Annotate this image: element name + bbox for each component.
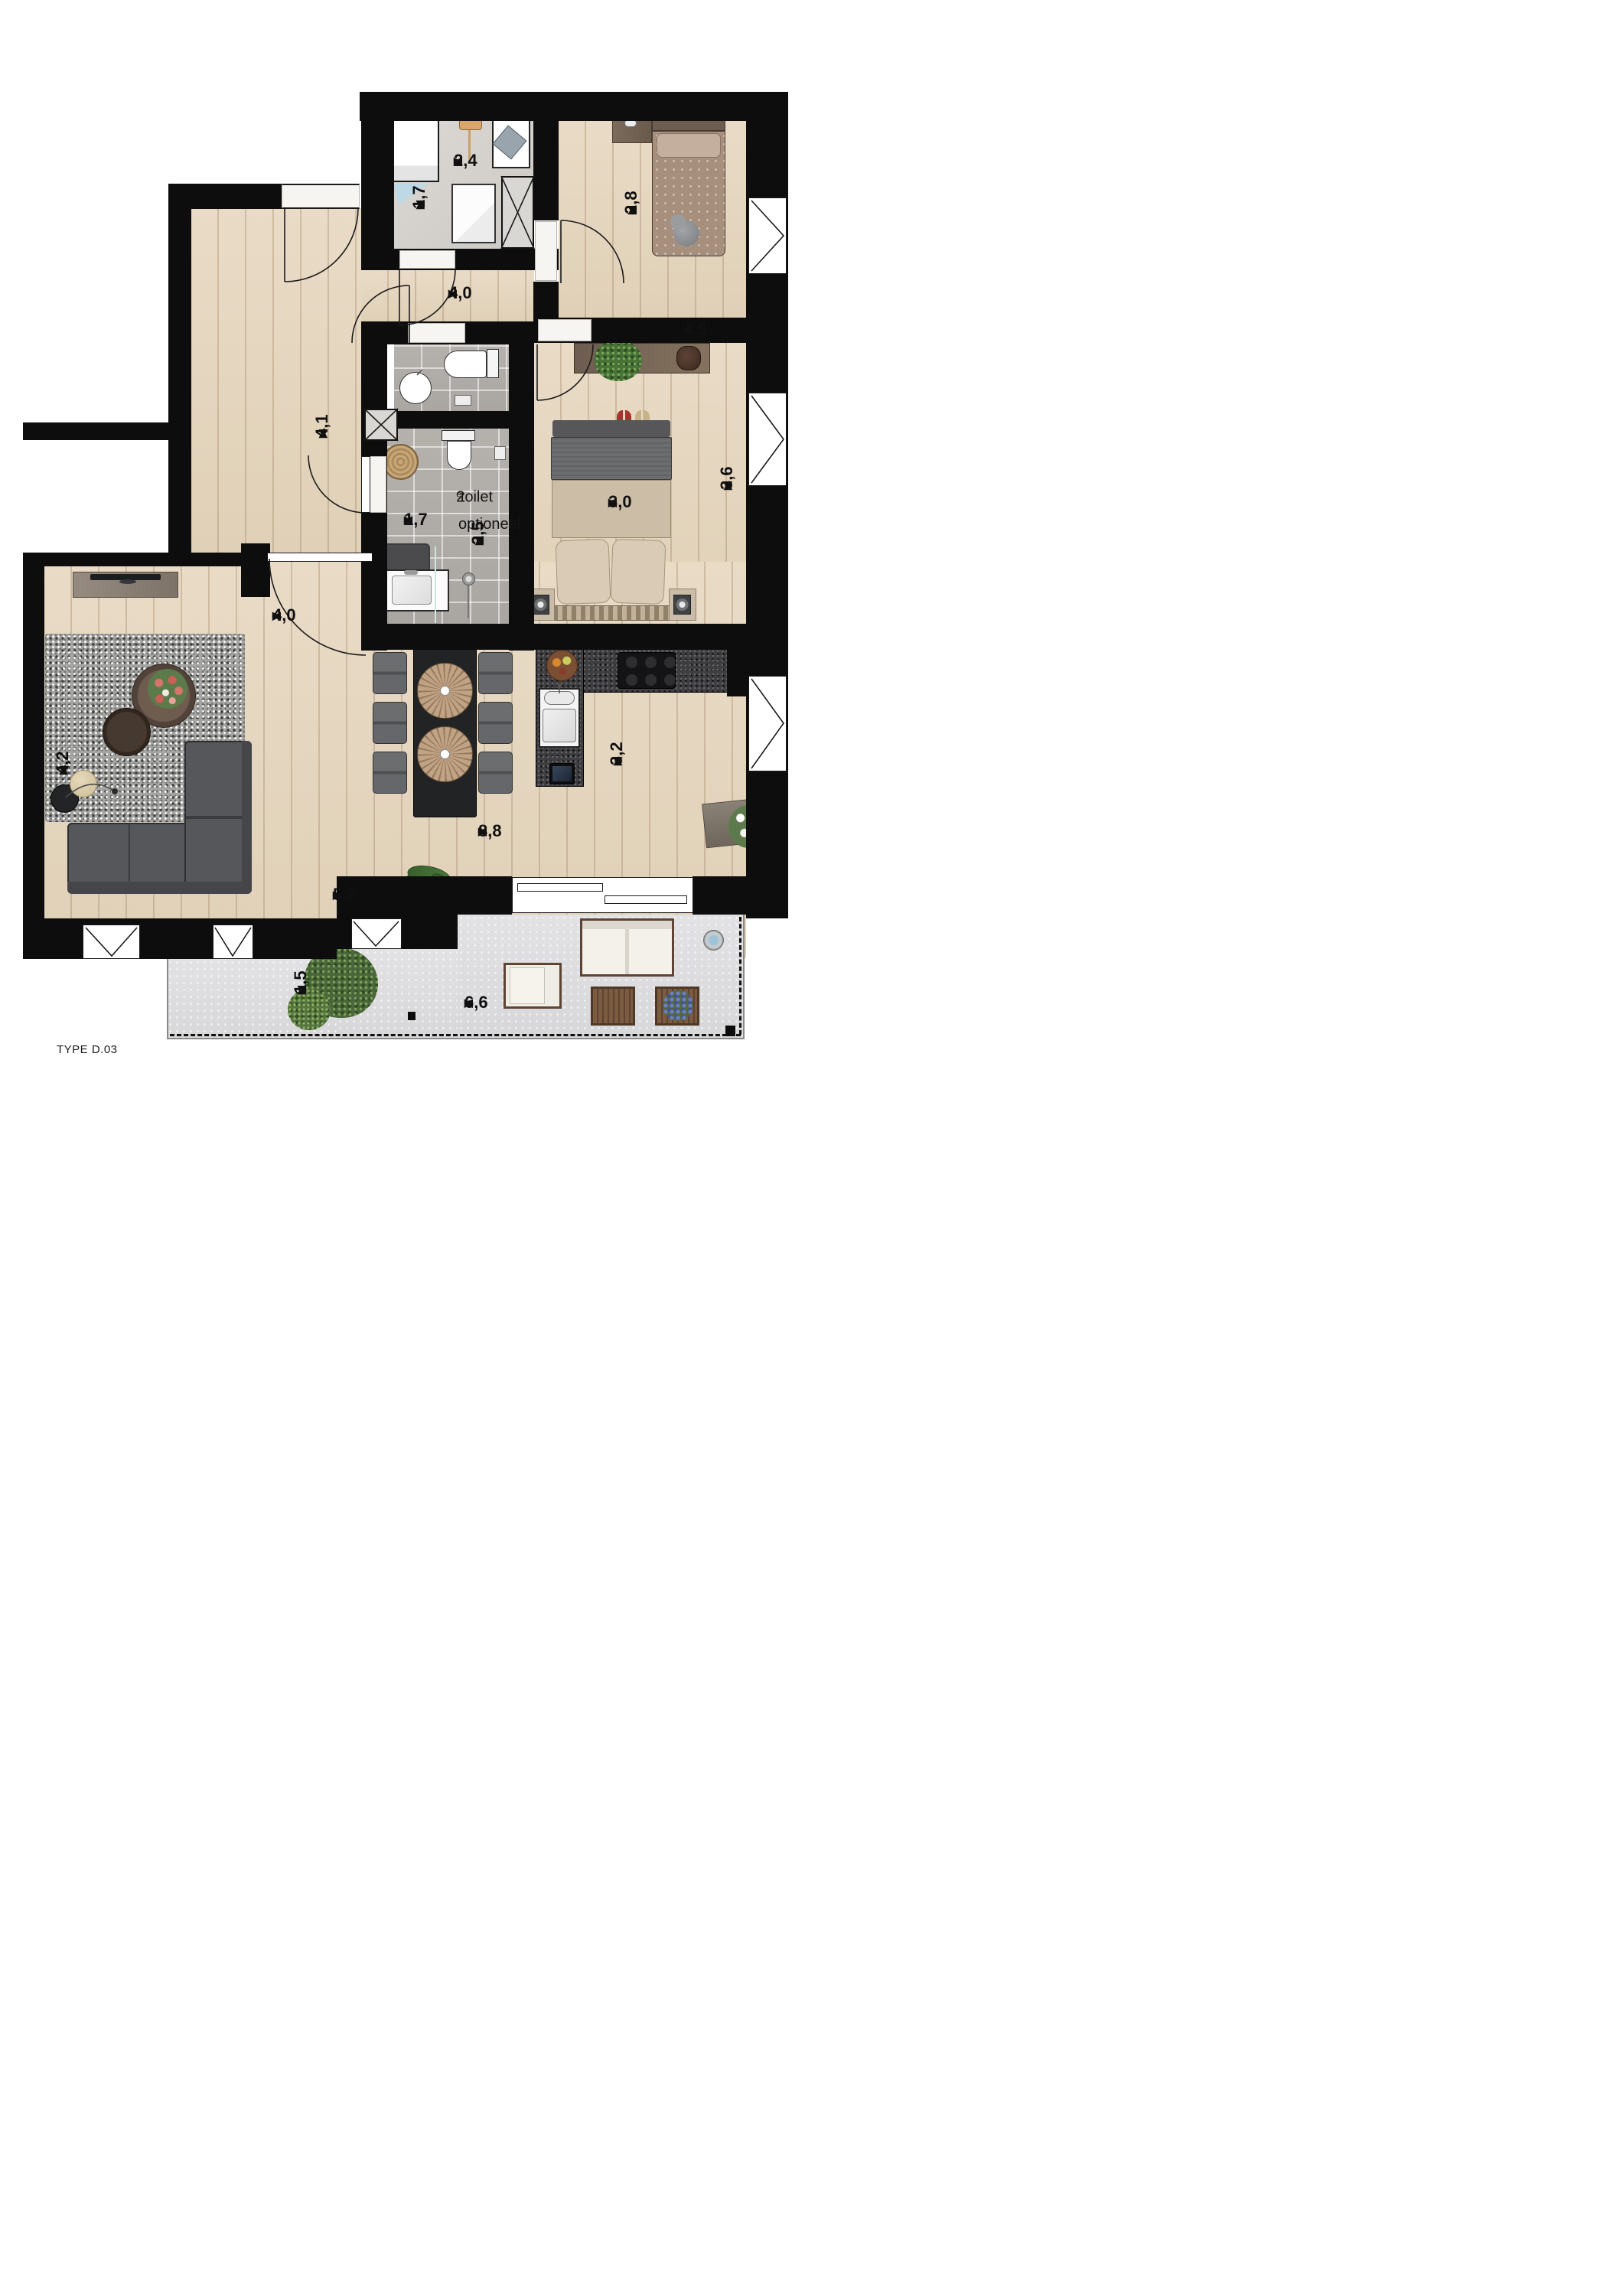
- dining-window: [351, 918, 402, 949]
- wall: [23, 422, 171, 440]
- tablet-screen: [552, 766, 572, 781]
- outdoor-lounge-cushion: [510, 967, 545, 1004]
- dining-chair: [373, 752, 407, 794]
- master-bed-duvet: [552, 480, 671, 538]
- teddy-bear-head: [670, 214, 686, 230]
- corner-sink: [399, 372, 432, 404]
- master-bed-pillow: [611, 539, 666, 605]
- fruit-bowl: [546, 650, 578, 681]
- washing-machine: [392, 116, 439, 182]
- balcony-railing: [170, 1034, 741, 1036]
- bathroom-door-leaf: [361, 456, 370, 513]
- sofa-chaise-backrest: [242, 741, 252, 894]
- wall: [23, 553, 44, 958]
- cooktop: [618, 652, 676, 689]
- balcony-bush-small: [288, 989, 331, 1030]
- kitchen-sink-main-bowl: [543, 709, 576, 742]
- master-bed-blanket: [551, 437, 672, 480]
- entrance-door-opening: [282, 184, 360, 209]
- plan-type-label: TYPE D.03: [57, 1043, 118, 1056]
- wall: [360, 92, 788, 121]
- wall: [386, 411, 534, 429]
- optional-toilet-bowl: [447, 441, 471, 470]
- balcony-edge-left: [167, 959, 168, 1039]
- pendant-lamp-cap: [440, 749, 450, 759]
- wall: [458, 876, 512, 915]
- toilet-paper-holder: [455, 395, 471, 406]
- hall-upper-floor: [361, 270, 534, 321]
- glazed-partition: [268, 553, 372, 562]
- optional-toilet-cistern: [442, 430, 475, 441]
- shower-glass: [435, 546, 436, 623]
- kids-door-opening: [535, 221, 557, 281]
- master-bedroom-window: [748, 393, 787, 486]
- master-bed-headboard: [552, 605, 670, 621]
- master-bed-footboard: [552, 420, 670, 437]
- side-table-beige: [70, 770, 97, 797]
- flower-bouquet: [148, 669, 187, 709]
- sofa-backrest: [67, 882, 252, 894]
- tv-stand: [119, 579, 136, 584]
- mirror: [451, 184, 496, 243]
- master-door-opening: [538, 319, 592, 341]
- broom-handle: [468, 130, 471, 162]
- hall-floor: [191, 208, 361, 555]
- dining-chair: [478, 652, 513, 694]
- toilet-paper-holder: [494, 446, 506, 460]
- wall: [361, 121, 394, 270]
- balcony-railing-right: [739, 917, 741, 1035]
- wall: [361, 624, 788, 650]
- dining-chair: [373, 652, 407, 694]
- shaft: [501, 176, 534, 249]
- vanity-taps: [404, 570, 418, 575]
- toilet-bowl: [444, 351, 487, 378]
- wall: [361, 249, 559, 270]
- sideboard-plant: [595, 340, 642, 381]
- railing-post: [408, 1012, 416, 1020]
- toilet-cistern: [487, 349, 499, 378]
- shaft: [364, 409, 398, 441]
- floor-plan: 2e toilet optioneel TYPE D.03 ◀2,4▶◀1,7▶…: [0, 0, 812, 1148]
- balcony-edge-right: [743, 915, 745, 1039]
- kitchen-sink-small-bowl: [544, 691, 575, 705]
- optional-toilet-note-line1: 2e toilet: [456, 489, 461, 507]
- wall: [168, 184, 191, 555]
- wall: [509, 321, 534, 651]
- master-bed-pillow: [556, 539, 611, 605]
- living-room-window: [213, 925, 253, 959]
- bedside-lamp: [532, 595, 549, 615]
- wall: [533, 92, 559, 220]
- kitchen-window: [748, 676, 787, 771]
- dining-chair: [478, 702, 513, 744]
- handbag: [676, 346, 701, 370]
- wall: [23, 553, 241, 566]
- outdoor-side-table: [591, 987, 635, 1026]
- dining-chair: [373, 702, 407, 744]
- wall: [23, 918, 337, 959]
- laundry-basket: [383, 444, 419, 480]
- shower-head: [462, 572, 475, 585]
- sliding-door-panel: [517, 883, 603, 892]
- wall: [693, 876, 746, 915]
- kids-room-window: [748, 197, 787, 274]
- outdoor-sofa: [580, 918, 674, 977]
- bedside-lamp: [673, 595, 691, 615]
- water-bowl: [703, 930, 724, 951]
- living-room-window: [83, 925, 140, 959]
- shower-pole: [468, 585, 469, 618]
- kids-pillow: [657, 133, 721, 158]
- sliding-door-panel: [605, 895, 687, 904]
- toilet-door-opening: [408, 323, 465, 343]
- utility-door-opening: [399, 250, 455, 269]
- coffee-table-small: [103, 708, 151, 756]
- dining-chair: [478, 752, 513, 794]
- wall: [241, 543, 270, 597]
- wall: [727, 624, 748, 696]
- vanity-basin: [392, 576, 432, 605]
- pendant-lamp-cap: [440, 686, 450, 696]
- blue-flower-pot: [663, 990, 693, 1021]
- balcony-edge-bottom: [167, 1038, 745, 1039]
